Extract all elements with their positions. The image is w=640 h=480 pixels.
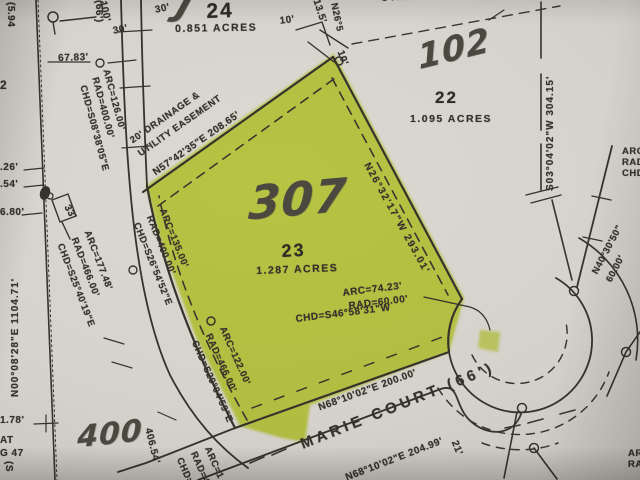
dim-5-94: (5.94	[5, 2, 16, 27]
cul-de-sac-bulb	[449, 278, 592, 412]
monument-circle-67	[96, 59, 104, 67]
radial-lot-lines-south	[504, 332, 640, 479]
monument-circle-bulb-s	[518, 404, 527, 413]
curve7-rad: RAD	[628, 459, 640, 470]
handwritten-lot23-tag: 307	[247, 167, 349, 230]
dim-178: 1.78'	[0, 415, 24, 426]
dim-680: 6.80'	[0, 207, 24, 218]
plat-map: 24 0.851 ACRES 22 1.095 ACRES 23 1.287 A…	[0, 0, 640, 480]
monument-circle-bulb-ne	[570, 287, 579, 296]
curve7-arc: ARC	[628, 448, 640, 459]
curve6-chd: CHD=	[622, 168, 640, 179]
section-line-stipple	[38, 0, 57, 480]
monument-arm	[53, 17, 96, 34]
frag-at: AT	[0, 435, 14, 446]
dim-lot-frag: 2	[0, 78, 7, 92]
lot24-area: 0.851 ACRES	[175, 22, 257, 35]
lot23-number: 23	[281, 240, 306, 262]
curve6-rad: RAD=	[622, 157, 640, 168]
dim-54: .54'	[0, 179, 18, 190]
building-leader	[62, 222, 70, 239]
lot22-area: 1.095 ACRES	[410, 113, 492, 125]
highlight-smudge	[478, 330, 500, 352]
dim-67-83: 67.83'	[58, 52, 89, 64]
bearing-east: S03°04'02"W 304.15'	[545, 76, 556, 191]
lot22-number: 22	[435, 88, 458, 108]
east-corner-link	[552, 200, 572, 280]
handwritten-400-tag: 400	[77, 413, 143, 455]
curve6-arc: ARC=	[622, 146, 640, 157]
dim-10-a: 10'	[279, 14, 295, 27]
monument-circle-road	[129, 266, 137, 274]
monument-circle-topleft	[48, 12, 58, 22]
bulb-setback-arc3	[482, 443, 558, 450]
bearing-west-section: N00°08'28"E 1104.71'	[10, 278, 21, 397]
lot24-number: 24	[206, 0, 234, 24]
frag-s: (S	[3, 461, 14, 472]
frag-g47: G 47	[0, 448, 24, 459]
dim-26: .26'	[0, 162, 18, 173]
section-line	[36, 0, 55, 480]
dimension-cross-178	[34, 415, 58, 432]
